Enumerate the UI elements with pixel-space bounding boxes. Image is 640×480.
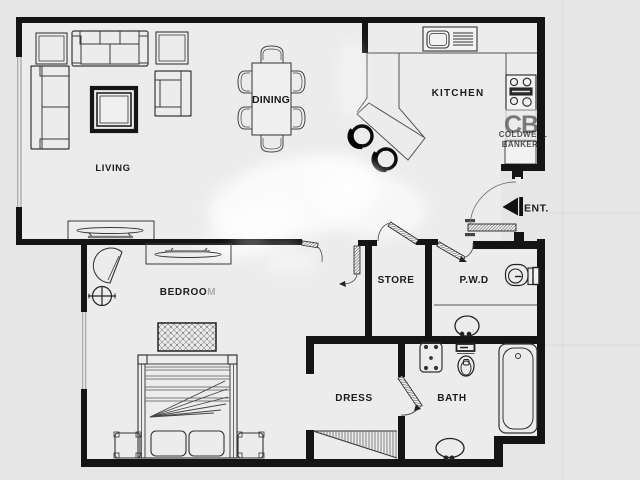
svg-text:STORE: STORE xyxy=(378,275,415,286)
svg-text:LIVING: LIVING xyxy=(95,163,130,174)
svg-text:DINING: DINING xyxy=(252,94,290,106)
svg-text:BATH: BATH xyxy=(437,393,466,404)
svg-text:P.W.D: P.W.D xyxy=(459,275,488,286)
svg-text:BANKER: BANKER xyxy=(502,140,539,149)
svg-text:BEDROOM: BEDROOM xyxy=(160,287,216,298)
svg-text:DRESS: DRESS xyxy=(335,393,372,404)
svg-text:KITCHEN: KITCHEN xyxy=(432,88,485,99)
